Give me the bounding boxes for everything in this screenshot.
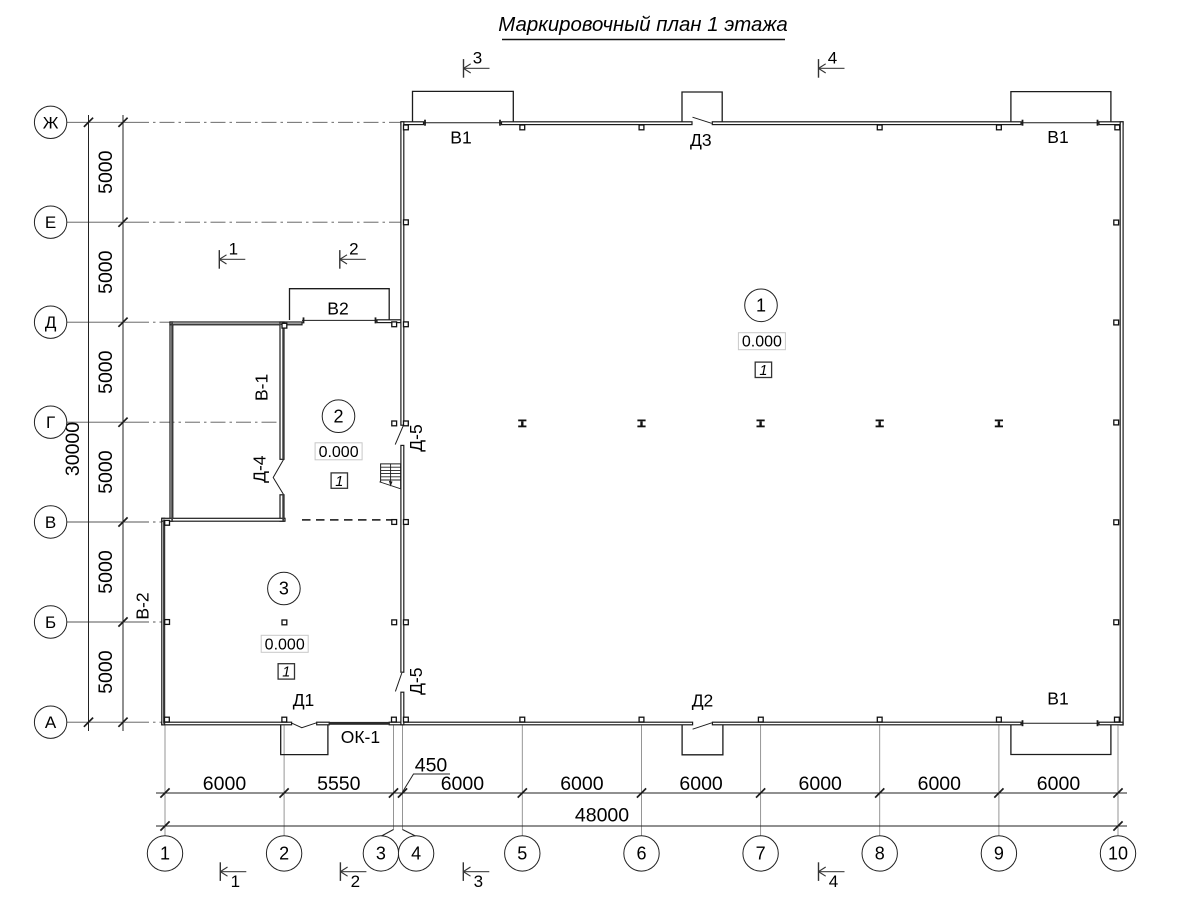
svg-text:6: 6 [636, 844, 646, 864]
svg-text:1: 1 [231, 872, 240, 891]
svg-text:5000: 5000 [95, 550, 117, 594]
svg-text:4: 4 [829, 872, 838, 891]
svg-text:2: 2 [279, 844, 289, 864]
svg-text:1: 1 [229, 240, 238, 259]
svg-text:4: 4 [411, 844, 421, 864]
svg-text:Д-4: Д-4 [249, 455, 269, 483]
svg-text:4: 4 [828, 49, 837, 68]
svg-text:6000: 6000 [679, 773, 723, 795]
svg-text:В1: В1 [450, 128, 471, 148]
svg-text:Г: Г [46, 413, 55, 432]
svg-text:3: 3 [376, 844, 386, 864]
svg-text:0.000: 0.000 [319, 444, 359, 461]
svg-text:Д2: Д2 [692, 691, 714, 711]
svg-text:1: 1 [282, 665, 290, 681]
svg-text:5: 5 [517, 844, 527, 864]
svg-text:В: В [45, 513, 56, 532]
svg-text:В-1: В-1 [252, 374, 272, 401]
svg-text:6000: 6000 [560, 773, 604, 795]
svg-text:8: 8 [875, 844, 885, 864]
svg-text:ОК-1: ОК-1 [341, 727, 380, 747]
svg-text:6000: 6000 [203, 773, 247, 795]
svg-text:1: 1 [160, 844, 170, 864]
svg-text:В2: В2 [327, 299, 348, 319]
svg-text:Д1: Д1 [293, 690, 315, 710]
svg-text:0.000: 0.000 [742, 334, 782, 351]
svg-text:5000: 5000 [95, 350, 117, 394]
svg-text:Ж: Ж [43, 113, 59, 132]
svg-text:1: 1 [335, 474, 343, 490]
svg-text:0.000: 0.000 [265, 636, 305, 653]
svg-text:Б: Б [45, 613, 56, 632]
svg-text:Е: Е [45, 213, 56, 232]
svg-text:Д: Д [45, 313, 57, 332]
svg-text:Д3: Д3 [690, 130, 712, 150]
svg-text:В1: В1 [1047, 127, 1068, 147]
svg-text:5000: 5000 [95, 150, 117, 194]
svg-text:В1: В1 [1047, 689, 1068, 709]
svg-text:Д-5: Д-5 [406, 667, 426, 694]
svg-text:7: 7 [756, 844, 766, 864]
svg-text:5000: 5000 [95, 450, 117, 494]
svg-text:Маркировочный план 1 этажа: Маркировочный план 1 этажа [498, 14, 787, 36]
svg-text:1: 1 [756, 296, 766, 316]
svg-text:1: 1 [759, 363, 767, 379]
svg-text:2: 2 [351, 872, 360, 891]
svg-text:6000: 6000 [799, 773, 843, 795]
svg-text:5000: 5000 [95, 250, 117, 294]
svg-text:3: 3 [473, 49, 482, 68]
svg-text:Д-5: Д-5 [406, 424, 426, 451]
svg-text:3: 3 [279, 579, 289, 599]
svg-text:6000: 6000 [441, 773, 485, 795]
svg-text:450: 450 [415, 755, 448, 777]
svg-text:2: 2 [333, 406, 343, 426]
svg-text:В-2: В-2 [133, 592, 153, 619]
svg-text:6000: 6000 [918, 773, 962, 795]
svg-text:9: 9 [994, 844, 1004, 864]
svg-text:2: 2 [349, 240, 358, 259]
svg-text:6000: 6000 [1037, 773, 1081, 795]
svg-text:5550: 5550 [317, 773, 361, 795]
svg-text:А: А [45, 713, 57, 732]
svg-text:5000: 5000 [95, 650, 117, 694]
svg-text:48000: 48000 [575, 805, 629, 827]
svg-text:3: 3 [474, 872, 483, 891]
svg-text:10: 10 [1108, 844, 1128, 864]
